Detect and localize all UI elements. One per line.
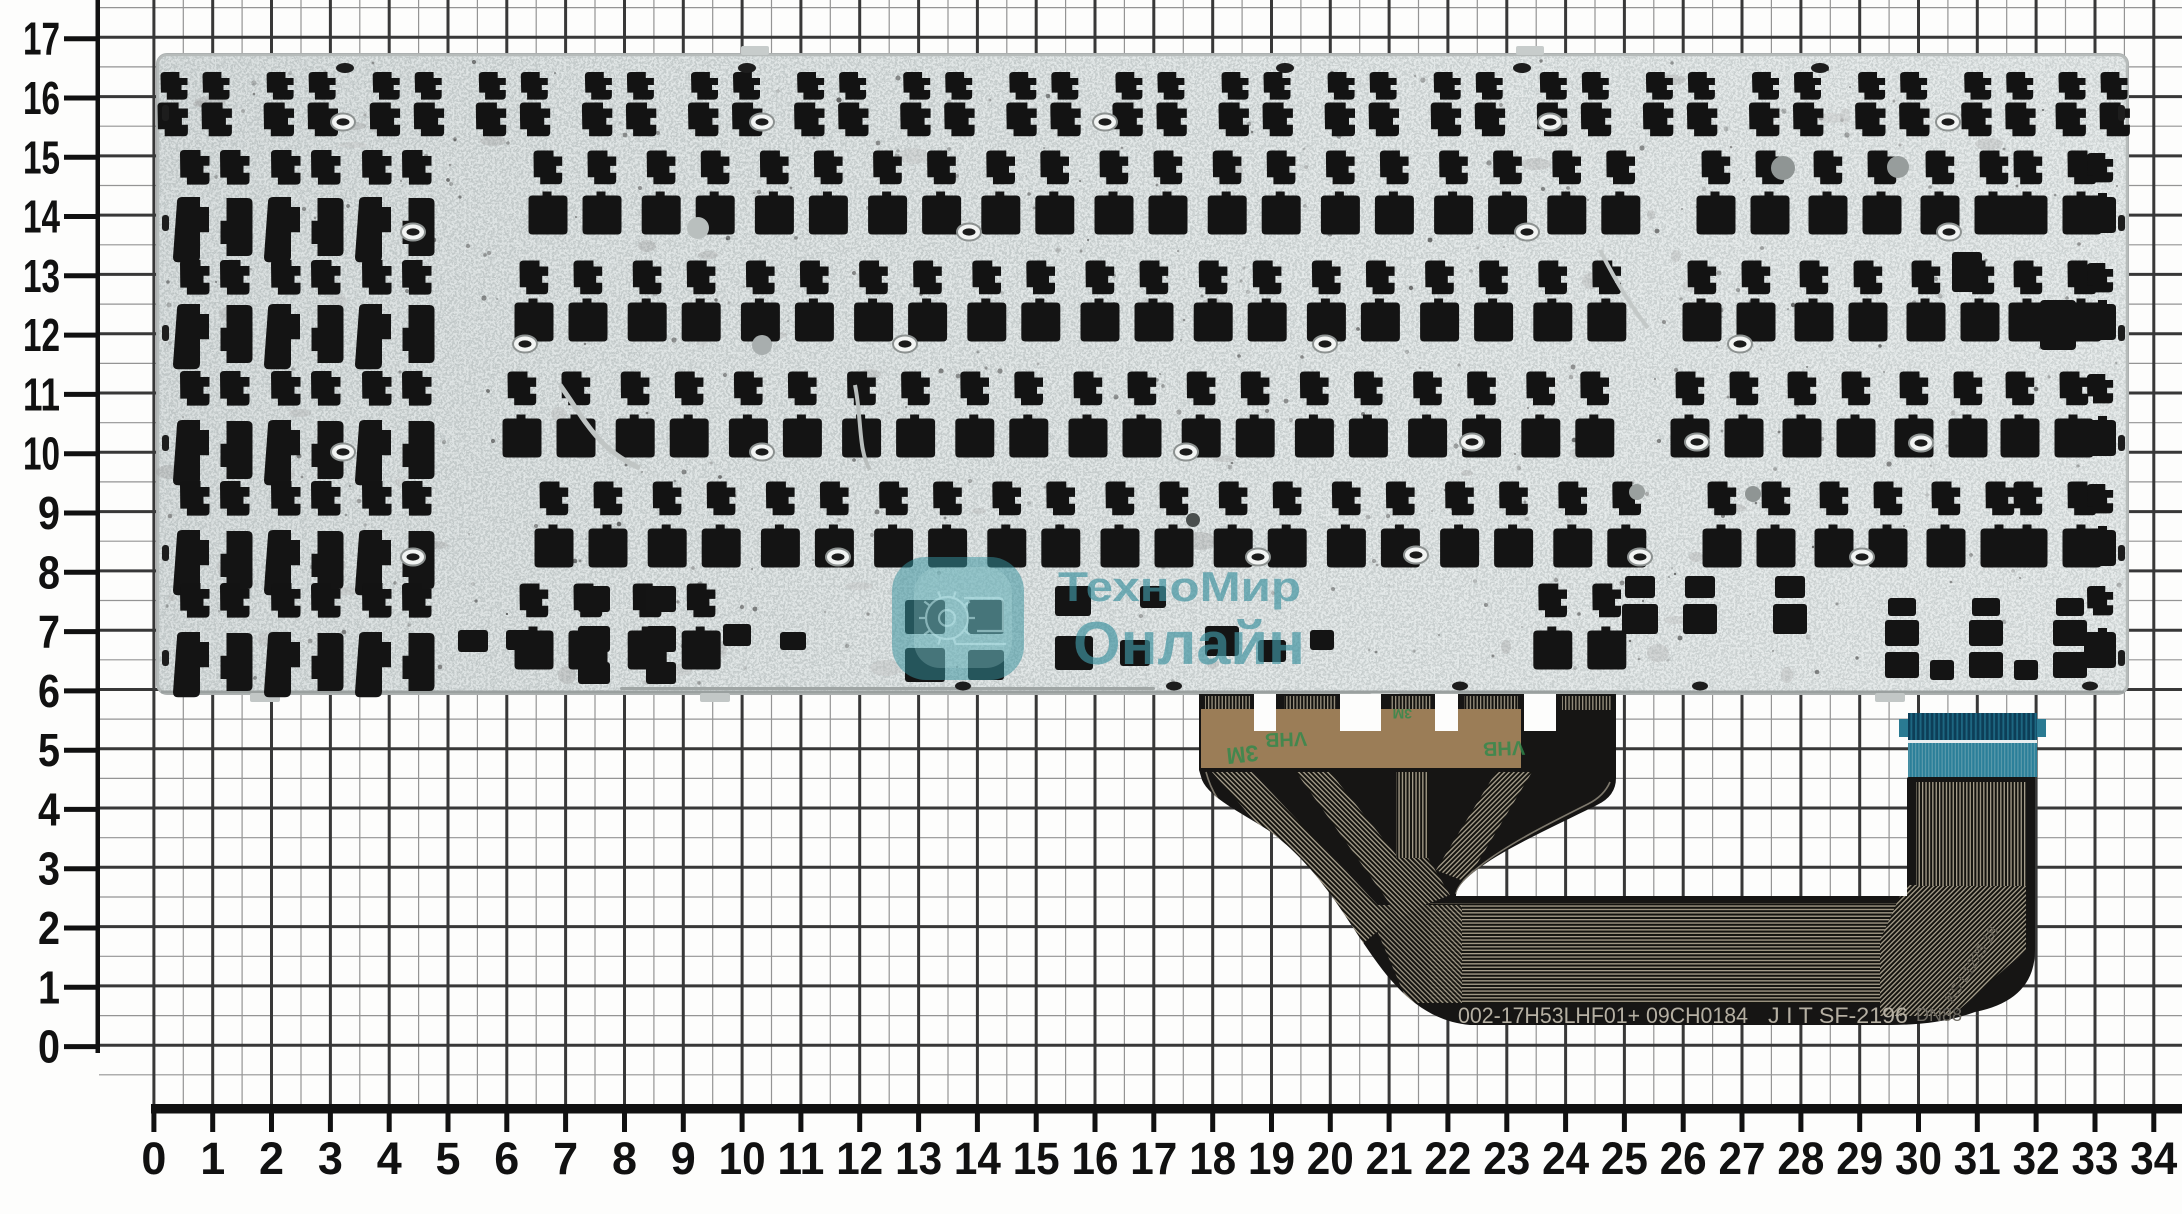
svg-text:2: 2 bbox=[259, 1133, 284, 1184]
svg-text:12: 12 bbox=[23, 309, 60, 361]
svg-text:10: 10 bbox=[23, 428, 60, 480]
svg-text:2: 2 bbox=[38, 902, 60, 954]
svg-text:13: 13 bbox=[895, 1133, 942, 1184]
svg-text:1: 1 bbox=[200, 1133, 225, 1184]
svg-text:18: 18 bbox=[1189, 1133, 1236, 1184]
svg-text:30: 30 bbox=[1895, 1133, 1942, 1184]
svg-text:6: 6 bbox=[494, 1133, 519, 1184]
svg-text:34: 34 bbox=[2130, 1133, 2177, 1184]
svg-text:5: 5 bbox=[38, 724, 60, 776]
svg-text:3: 3 bbox=[38, 843, 60, 895]
svg-text:0: 0 bbox=[38, 1021, 60, 1073]
svg-text:14: 14 bbox=[954, 1133, 1001, 1184]
svg-text:17: 17 bbox=[1130, 1133, 1177, 1184]
svg-text:16: 16 bbox=[23, 72, 60, 124]
svg-text:7: 7 bbox=[38, 606, 60, 658]
svg-text:Онлайн: Онлайн bbox=[1073, 610, 1305, 677]
svg-text:ТехноМир: ТехноМир bbox=[1058, 563, 1301, 610]
svg-text:23: 23 bbox=[1483, 1133, 1530, 1184]
svg-text:VHB: VHB bbox=[1264, 727, 1307, 750]
svg-text:11: 11 bbox=[23, 368, 60, 420]
svg-text:0: 0 bbox=[141, 1133, 166, 1184]
svg-text:15: 15 bbox=[1013, 1133, 1060, 1184]
svg-text:10: 10 bbox=[719, 1133, 766, 1184]
svg-text:21: 21 bbox=[1366, 1133, 1413, 1184]
svg-text:8: 8 bbox=[612, 1133, 637, 1184]
svg-text:32: 32 bbox=[2013, 1133, 2060, 1184]
svg-text:28: 28 bbox=[1777, 1133, 1824, 1184]
svg-text:27: 27 bbox=[1719, 1133, 1766, 1184]
svg-text:3: 3 bbox=[318, 1133, 343, 1184]
svg-text:7: 7 bbox=[553, 1133, 578, 1184]
svg-text:J I T SF-2196: J I T SF-2196 bbox=[1768, 1003, 1908, 1028]
svg-text:16: 16 bbox=[1072, 1133, 1119, 1184]
svg-text:12: 12 bbox=[836, 1133, 883, 1184]
svg-text:17: 17 bbox=[23, 13, 60, 65]
svg-text:33: 33 bbox=[2072, 1133, 2119, 1184]
svg-text:26: 26 bbox=[1660, 1133, 1707, 1184]
svg-text:20: 20 bbox=[1307, 1133, 1354, 1184]
svg-text:24: 24 bbox=[1542, 1133, 1589, 1184]
svg-text:9: 9 bbox=[671, 1133, 696, 1184]
svg-text:DN88: DN88 bbox=[1916, 1005, 1962, 1025]
svg-text:002-17H53LHF01+ 09CH0184: 002-17H53LHF01+ 09CH0184 bbox=[1458, 1003, 1748, 1028]
svg-text:VHB: VHB bbox=[1482, 736, 1525, 759]
svg-text:1: 1 bbox=[38, 961, 60, 1013]
svg-text:19: 19 bbox=[1248, 1133, 1295, 1184]
svg-text:9: 9 bbox=[38, 487, 60, 539]
svg-text:25: 25 bbox=[1601, 1133, 1648, 1184]
svg-text:6: 6 bbox=[38, 665, 60, 717]
svg-text:4: 4 bbox=[377, 1133, 402, 1184]
svg-text:14: 14 bbox=[23, 191, 60, 243]
svg-text:22: 22 bbox=[1424, 1133, 1471, 1184]
svg-text:8: 8 bbox=[38, 546, 60, 598]
svg-text:31: 31 bbox=[1954, 1133, 2001, 1184]
svg-text:4: 4 bbox=[38, 783, 60, 835]
svg-text:13: 13 bbox=[23, 250, 60, 302]
svg-text:3M: 3M bbox=[1393, 706, 1412, 722]
svg-text:5: 5 bbox=[436, 1133, 461, 1184]
svg-text:15: 15 bbox=[23, 131, 60, 183]
svg-text:11: 11 bbox=[777, 1133, 824, 1184]
svg-text:3M: 3M bbox=[1225, 740, 1259, 769]
svg-text:29: 29 bbox=[1836, 1133, 1883, 1184]
